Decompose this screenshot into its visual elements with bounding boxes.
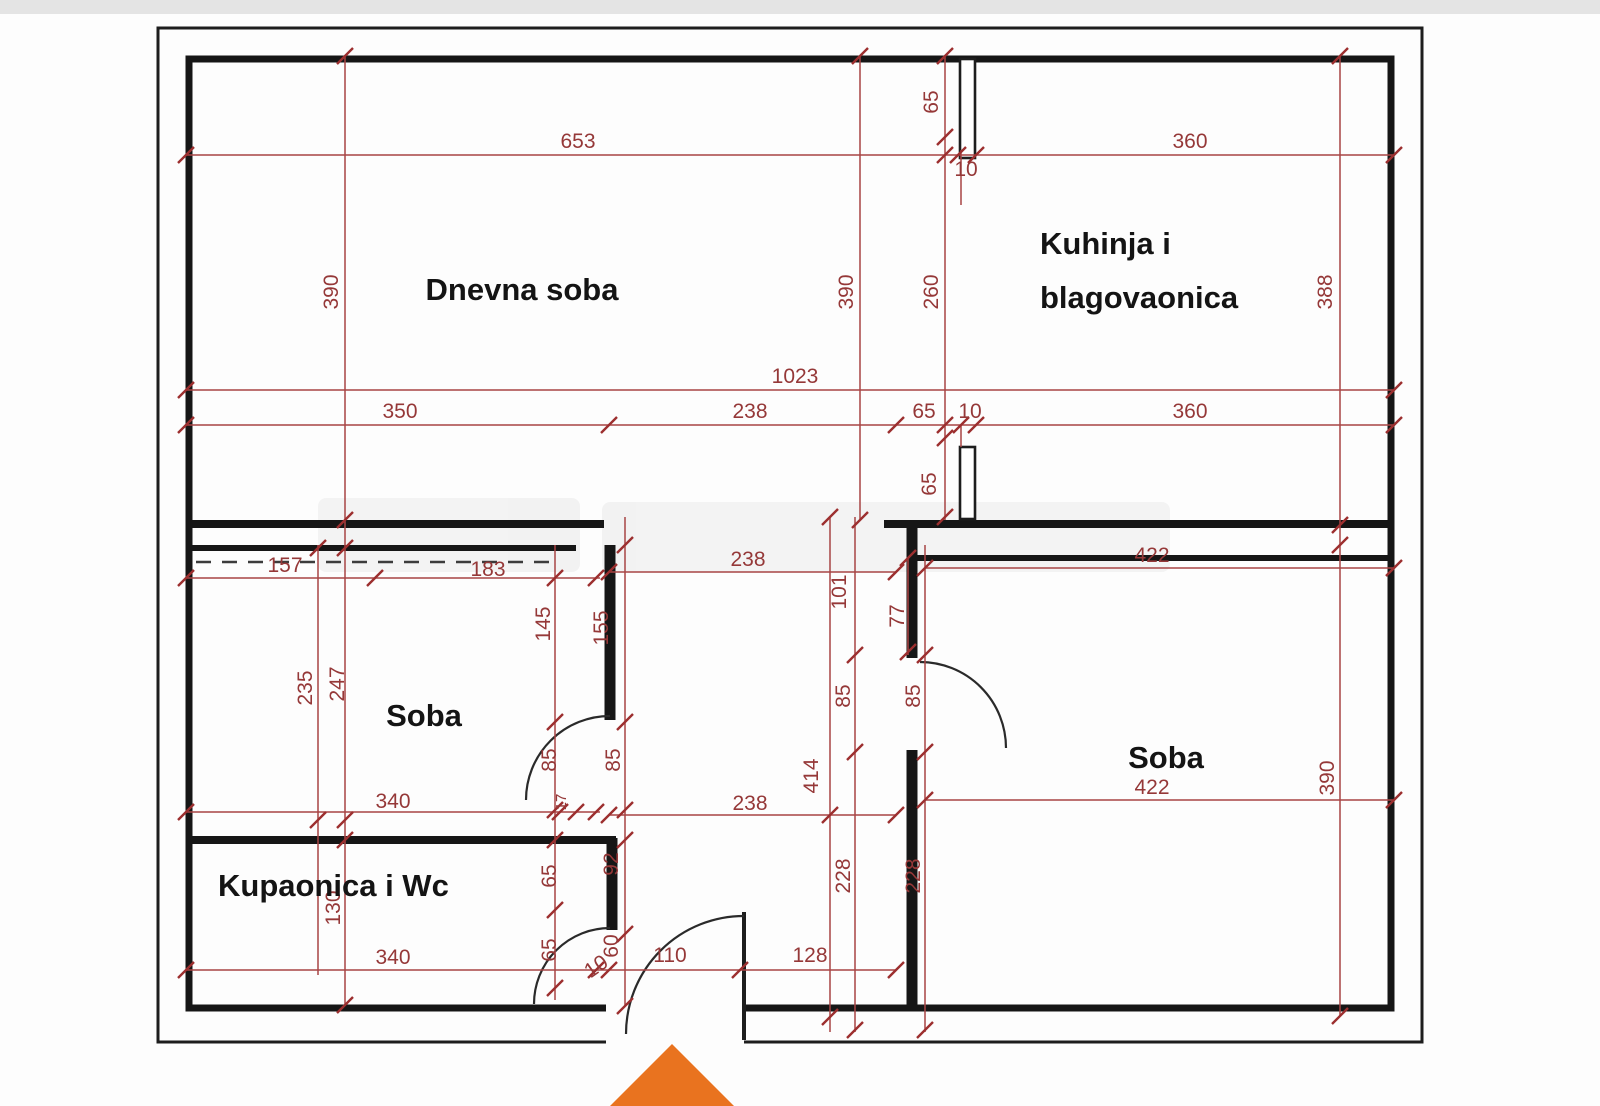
- dim-lower-b: 183: [470, 558, 505, 581]
- dim-lowermid-c: 238: [732, 792, 767, 815]
- dim-228-b: 228: [902, 858, 925, 893]
- vent-shaft-top: [960, 59, 975, 158]
- vent-shaft-mid: [960, 447, 975, 519]
- dim-bottom-a: 340: [375, 946, 410, 969]
- dim-mid-d: 10: [958, 400, 981, 423]
- dim-mid-e: 360: [1172, 400, 1207, 423]
- doors: [526, 662, 1006, 1040]
- dim-bath-65a: 65: [538, 864, 561, 887]
- dim-door-right-a: 85: [832, 684, 855, 707]
- dim-mid-height: 390: [835, 274, 858, 309]
- page-edge-strip: [0, 0, 1600, 14]
- dim-wall-155: 155: [590, 610, 613, 645]
- dim-vent2-height: 65: [918, 472, 941, 495]
- dim-lower-c: 238: [730, 548, 765, 571]
- dim-bottom-c: 110: [653, 944, 686, 967]
- dim-mid-a: 350: [382, 400, 417, 423]
- room-label-room-right: Soba: [1128, 740, 1205, 775]
- dim-vent-height: 65: [920, 90, 943, 113]
- dim-hall-gap: 101: [828, 574, 851, 609]
- dim-living-height: 390: [320, 274, 343, 309]
- entrance-arrow-icon: [610, 1044, 734, 1106]
- room-label-living: Dnevna soba: [426, 272, 620, 307]
- dim-total-width: 1023: [772, 365, 819, 388]
- room-label-kitchen-line1: Kuhinja i: [1040, 226, 1171, 261]
- room-label-room-left: Soba: [386, 698, 463, 733]
- dim-lower-a: 157: [267, 554, 302, 577]
- dim-lower-d: 422: [1134, 544, 1169, 567]
- dim-top-right: 360: [1172, 130, 1207, 153]
- floorplan-drawing: 653 360 65 10 390 390 260 388 1023 350 2…: [0, 0, 1600, 1106]
- dim-mid-c: 65: [912, 400, 935, 423]
- door-arc-room-right: [920, 662, 1006, 748]
- dim-bath-65b: 65: [538, 938, 561, 961]
- dim-door-right-b: 85: [902, 684, 925, 707]
- dim-hall-length: 414: [800, 758, 823, 793]
- dim-top-left: 653: [560, 130, 595, 153]
- dim-lowermid-d: 422: [1134, 776, 1169, 799]
- room-label-bathroom: Kupaonica i Wc: [218, 868, 449, 903]
- dim-roomright-height: 390: [1316, 760, 1339, 795]
- dim-bottom-d: 128: [792, 944, 827, 967]
- dim-kitchen-height: 260: [920, 274, 943, 309]
- dim-door-left-b: 85: [602, 748, 625, 771]
- dim-wall-145: 145: [532, 606, 555, 641]
- dim-right-height: 388: [1314, 274, 1337, 309]
- dim-wall-77: 77: [886, 604, 909, 627]
- dim-roomleft-h2: 247: [326, 666, 349, 701]
- room-label-kitchen-line2: blagovaonica: [1040, 280, 1239, 315]
- dim-lowermid-a: 340: [375, 790, 410, 813]
- dim-mid-b: 238: [732, 400, 767, 423]
- dim-lowermid-b: 17: [553, 794, 570, 811]
- dim-door-left-a: 85: [538, 748, 561, 771]
- dim-bath-60: 60: [600, 934, 623, 957]
- dim-228-a: 228: [832, 858, 855, 893]
- dim-vent-width: 10: [954, 158, 977, 181]
- dim-roomleft-h1: 235: [294, 670, 317, 705]
- floorplan-page: 653 360 65 10 390 390 260 388 1023 350 2…: [0, 0, 1600, 1106]
- dim-bath-92: 92: [600, 852, 623, 875]
- door-arc-entrance: [626, 916, 744, 1034]
